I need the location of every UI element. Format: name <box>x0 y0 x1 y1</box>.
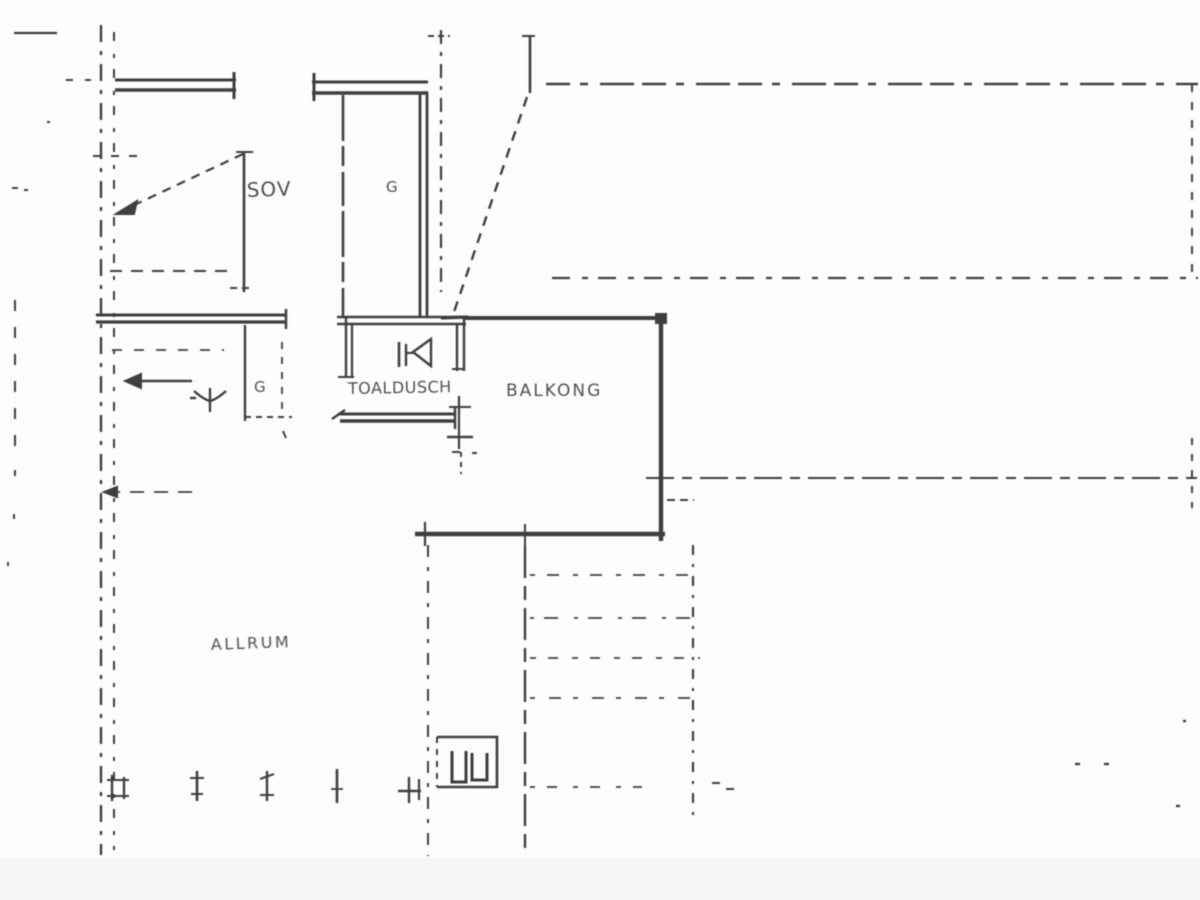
stray-scan-mark <box>12 33 91 190</box>
wall-mid-left <box>96 309 287 329</box>
floorplan-canvas: SOV G G TOALDUSCH BALKONG ALLRUM <box>0 0 1200 900</box>
room-label-wardrobe-top: G <box>386 178 398 196</box>
bedroom-partition <box>93 151 253 292</box>
room-label-balcony: BALKONG <box>506 381 602 401</box>
stair-section-lines <box>428 545 734 856</box>
entrance-arrow <box>104 350 224 497</box>
arrowhead-icon <box>104 487 117 497</box>
post-symbol <box>190 771 204 801</box>
arrowhead-icon <box>125 374 141 388</box>
toilet-icon <box>399 339 431 367</box>
hall-wardrobe-walls <box>245 325 292 438</box>
floorplan-drawing: SOV G G TOALDUSCH BALKONG ALLRUM <box>0 0 1200 900</box>
post-symbol <box>331 769 343 803</box>
scan-dots <box>1075 721 1186 806</box>
room-label-bedroom: SOV <box>246 176 292 202</box>
roof-outline <box>441 36 1198 508</box>
post-symbol <box>107 775 129 801</box>
wall-top-middle <box>312 73 428 101</box>
scan-artifact-band <box>0 858 1200 900</box>
wardrobe-top-walls <box>343 30 450 318</box>
room-label-wardrobe-hall: G <box>254 378 266 396</box>
wall-top-left <box>115 72 236 99</box>
exterior-wall-left <box>8 25 114 855</box>
shower-icon <box>190 388 226 412</box>
post-symbols <box>107 769 421 803</box>
threshold-marks <box>447 396 477 474</box>
shaft-icon <box>437 737 497 787</box>
bathroom-walls <box>332 317 466 429</box>
direction-arrowhead <box>116 201 137 214</box>
room-label-living-room: ALLRUM <box>210 632 291 654</box>
post-symbol <box>398 777 421 803</box>
post-symbol <box>260 771 274 801</box>
room-label-bathroom: TOALDUSCH <box>347 377 452 398</box>
